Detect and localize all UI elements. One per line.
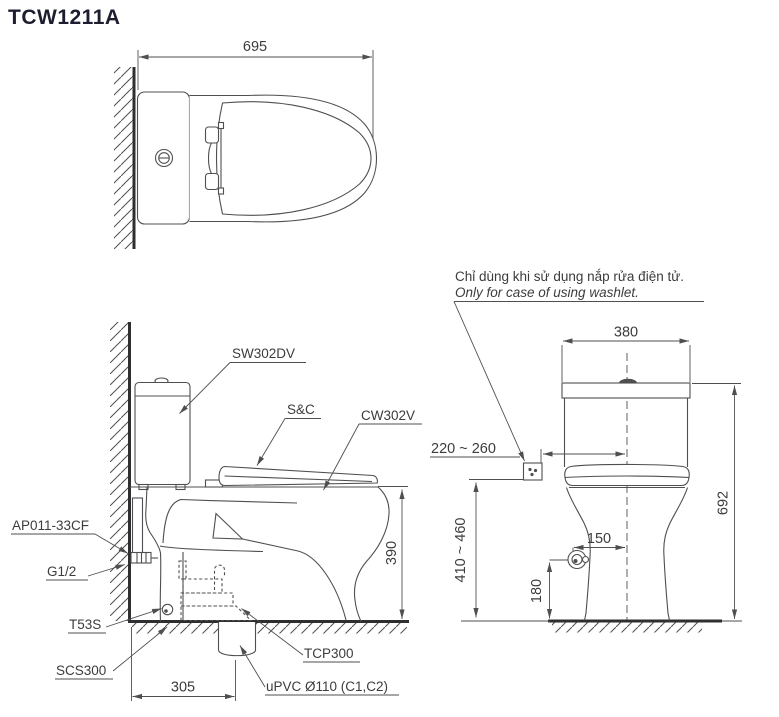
label-tank: SW302DV [232,346,295,361]
seat-front [565,464,690,485]
note-english: Only for case of using washlet. [455,285,639,300]
label-hose: T53S [69,617,101,632]
dimension-supply-height: 180 [529,560,568,619]
seat-cover-side [219,467,377,486]
supply-pipe [133,498,143,553]
label-floor-flange: SCS300 [56,663,106,678]
dim-692: 692 [716,491,732,515]
dimension-supply-from-center: 150 [573,531,625,551]
dim-150: 150 [587,531,611,547]
dim-695: 695 [243,39,267,55]
dim-220-260: 220 ~ 260 [431,441,496,457]
dimension-outlet-height-range: 410 ~ 460 [453,480,523,618]
dim-305: 305 [171,680,195,696]
front-view: Chỉ dùng khi sử dụng nắp rửa điện tử. On… [430,269,742,633]
floor-hatch [131,623,407,634]
dim-390: 390 [384,541,400,565]
part-labels: SW302DV S&C CW302V AP011-33CF G1/2 T53S [11,346,422,695]
label-supply-thread: G1/2 [47,564,76,579]
angle-valve [131,553,158,564]
wall-hatch [110,322,129,621]
bowl-internal-lines [160,500,346,621]
dim-380: 380 [614,325,638,341]
drain-pipe [219,622,256,656]
washlet-note: Chỉ dùng khi sử dụng nắp rửa điện tử. On… [454,269,704,461]
supply-inlet-icon [568,551,589,569]
floor-hatch [552,623,702,633]
tank-side [135,383,190,485]
washlet-outlet-box [524,463,543,480]
dimension-tank-width: 380 [562,325,690,383]
technical-drawing: 695 [0,0,779,717]
wall-hatch [114,67,133,249]
dimension-overall-height: 692 [692,384,741,620]
dimension-rim-height: 390 [378,487,408,620]
dimension-outlet-side-range: 220 ~ 260 [430,441,625,463]
label-outlet-socket: TCP300 [304,646,354,661]
tank-lid-front [562,383,690,398]
label-angle-valve: AP011-33CF [12,518,89,533]
drawing-sheet: TCW1211A 695 [0,0,779,717]
label-drain-pipe: uPVC Ø110 (C1,C2) [266,679,388,694]
side-view: 390 305 SW302DV S&C CW302V AP011- [11,322,422,701]
flush-knob-icon [156,150,173,167]
note-vietnamese: Chỉ dùng khi sử dụng nắp rửa điện tử. [455,269,684,284]
hose-connector [162,604,172,614]
top-view: 695 [114,39,377,249]
flush-button [619,379,637,383]
label-bowl: CW302V [361,408,415,423]
label-seat-cover: S&C [287,402,315,417]
outlet-assembly-hidden [179,561,251,621]
pedestal-right [664,488,688,621]
dim-410-460: 410 ~ 460 [453,518,469,583]
dim-180: 180 [529,579,545,603]
